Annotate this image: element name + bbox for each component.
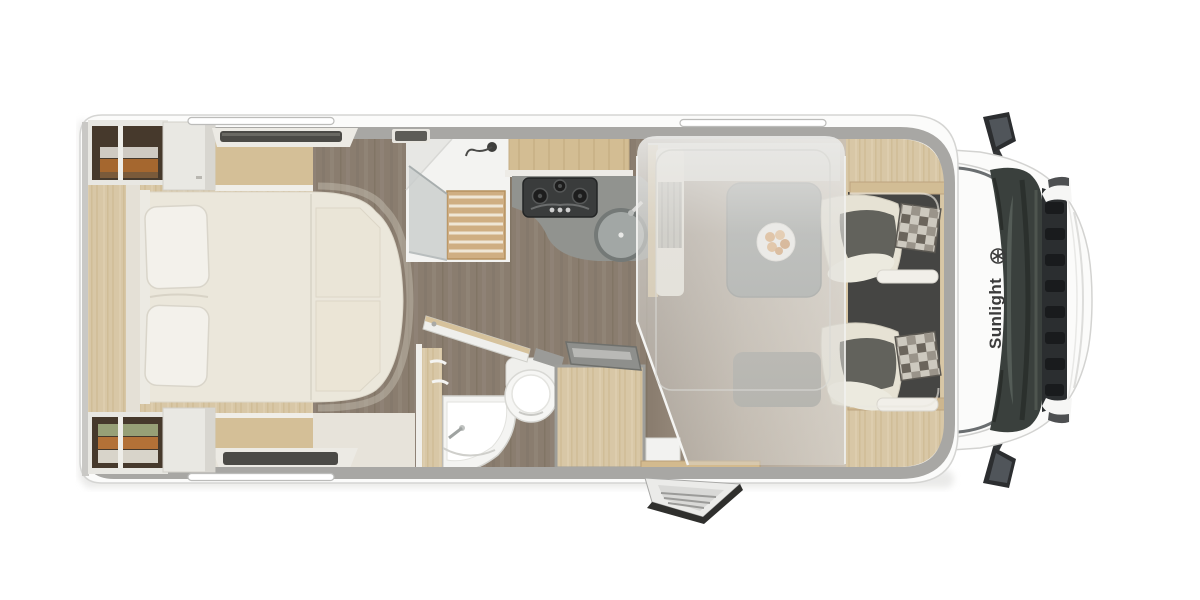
svg-text:Sunlight: Sunlight (986, 278, 1005, 349)
